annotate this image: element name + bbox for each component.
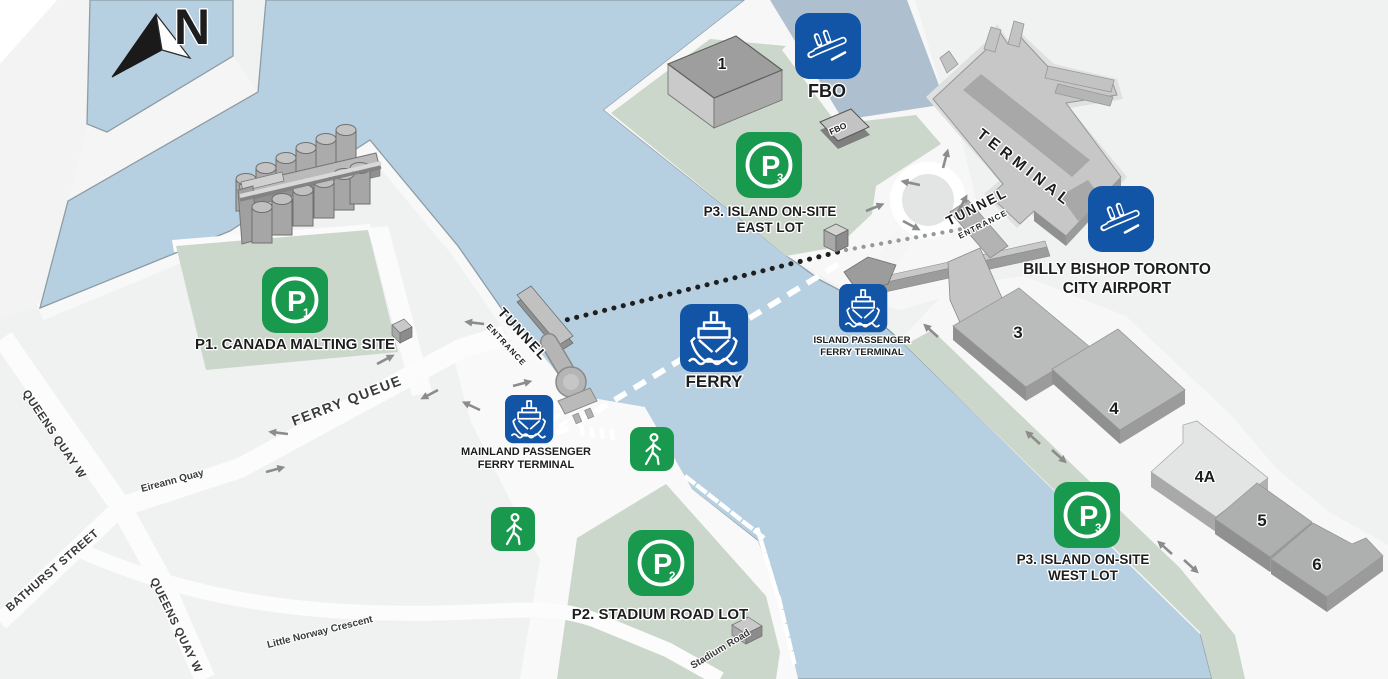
svg-text:FERRY TERMINAL: FERRY TERMINAL <box>478 459 575 471</box>
svg-text:P2. STADIUM ROAD LOT: P2. STADIUM ROAD LOT <box>572 606 748 623</box>
svg-text:CITY AIRPORT: CITY AIRPORT <box>1063 280 1172 297</box>
svg-text:P3. ISLAND ON-SITE: P3. ISLAND ON-SITE <box>1017 552 1150 567</box>
svg-text:MAINLAND PASSENGER: MAINLAND PASSENGER <box>461 446 591 458</box>
svg-text:ISLAND PASSENGER: ISLAND PASSENGER <box>814 335 911 346</box>
svg-text:FBO: FBO <box>808 81 846 101</box>
svg-text:3: 3 <box>1095 523 1101 535</box>
svg-text:FERRY TERMINAL: FERRY TERMINAL <box>820 347 904 358</box>
svg-text:1: 1 <box>718 56 727 73</box>
svg-text:4A: 4A <box>1195 469 1216 486</box>
svg-text:N: N <box>174 0 210 55</box>
svg-text:3: 3 <box>1013 323 1022 342</box>
svg-text:3: 3 <box>777 173 783 185</box>
svg-text:P1. CANADA MALTING SITE: P1. CANADA MALTING SITE <box>195 336 395 353</box>
svg-text:WEST LOT: WEST LOT <box>1048 568 1118 583</box>
svg-text:1: 1 <box>303 308 310 320</box>
svg-text:P3. ISLAND ON-SITE: P3. ISLAND ON-SITE <box>704 204 837 219</box>
svg-text:5: 5 <box>1257 511 1266 530</box>
svg-text:4: 4 <box>1109 399 1119 418</box>
svg-text:2: 2 <box>669 571 675 583</box>
svg-text:FERRY: FERRY <box>686 372 744 391</box>
svg-text:6: 6 <box>1312 555 1321 574</box>
svg-text:EAST LOT: EAST LOT <box>737 220 805 235</box>
svg-text:BILLY BISHOP TORONTO: BILLY BISHOP TORONTO <box>1023 261 1211 278</box>
